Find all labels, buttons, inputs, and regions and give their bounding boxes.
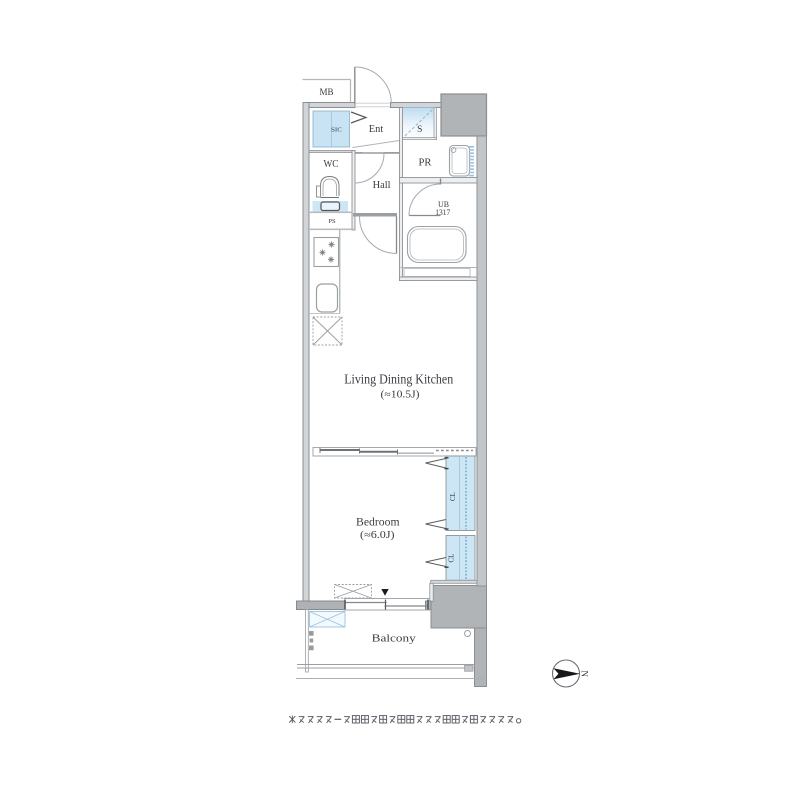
svg-text:WC: WC	[324, 158, 339, 170]
svg-text:Bedroom: Bedroom	[356, 515, 400, 529]
svg-text:PS: PS	[328, 218, 336, 225]
svg-text:CL: CL	[449, 492, 457, 501]
svg-text:(≈10.5J): (≈10.5J)	[381, 389, 420, 400]
svg-text:Balcony: Balcony	[372, 633, 417, 645]
svg-text:Ent: Ent	[369, 124, 384, 135]
svg-text:S: S	[417, 125, 422, 135]
svg-text:Hall: Hall	[373, 179, 391, 191]
svg-text:(≈6.0J): (≈6.0J)	[360, 530, 395, 541]
svg-text:MB: MB	[319, 87, 333, 97]
svg-text:CL: CL	[447, 554, 455, 563]
svg-text:PR: PR	[419, 157, 433, 169]
svg-text:N: N	[580, 671, 590, 678]
svg-text:Living Dining Kitchen: Living Dining Kitchen	[344, 371, 453, 386]
svg-text:SIC: SIC	[331, 127, 342, 134]
